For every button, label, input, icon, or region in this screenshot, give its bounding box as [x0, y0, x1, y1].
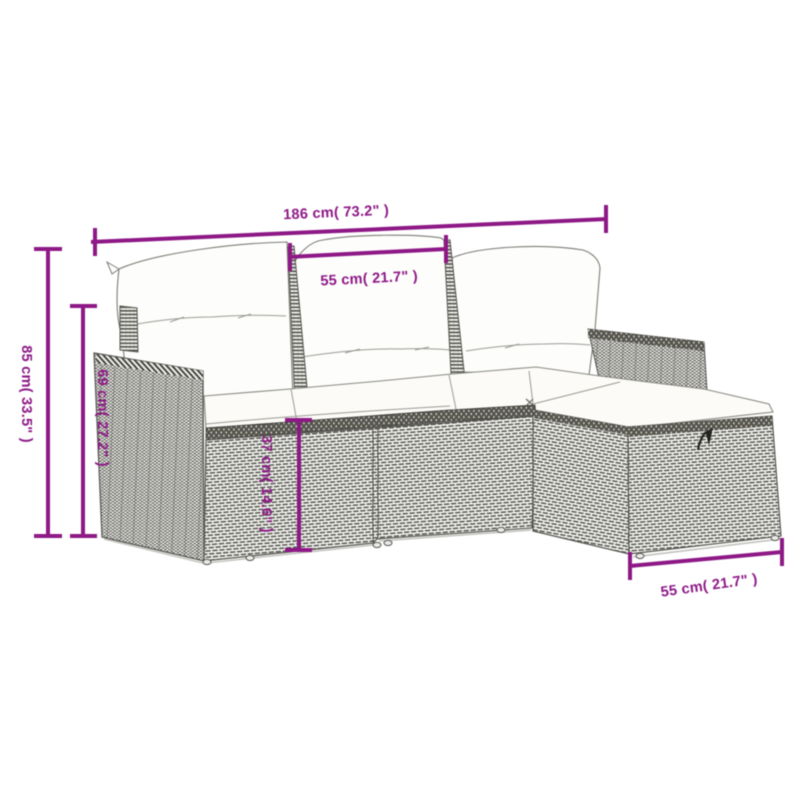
svg-text:69 cm( 27.2" ): 69 cm( 27.2" ) [94, 369, 110, 467]
svg-text:85 cm( 33.5" ): 85 cm( 33.5" ) [18, 345, 34, 443]
svg-text:37 cm( 14.6" ): 37 cm( 14.6" ) [258, 435, 274, 533]
